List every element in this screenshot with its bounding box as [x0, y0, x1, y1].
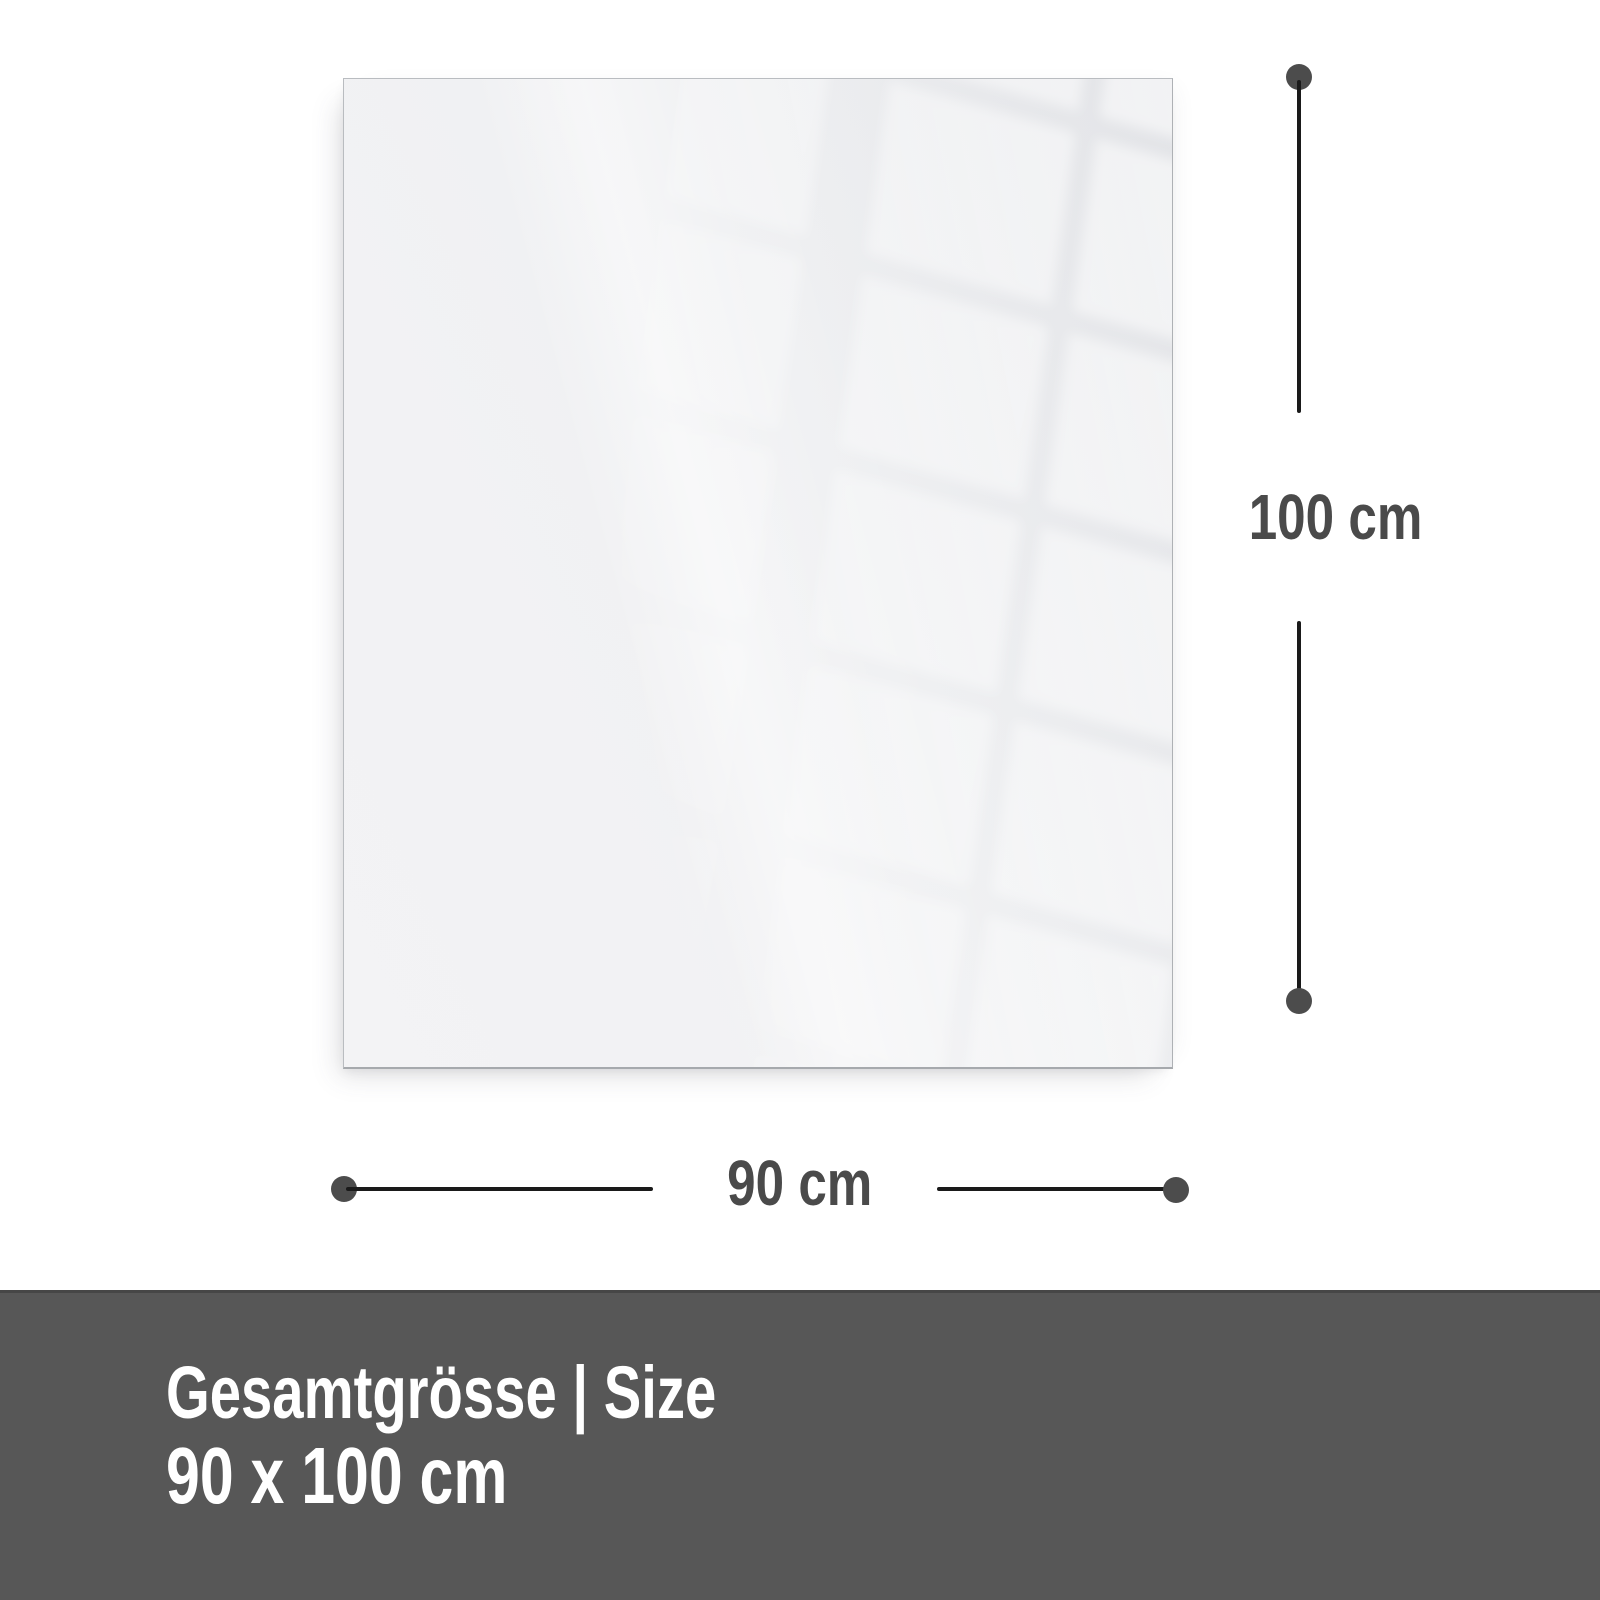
reflection-pane [609, 413, 776, 625]
dimension-line-segment [346, 1187, 653, 1191]
reflection-pane [811, 469, 1021, 693]
dimension-line-segment [1297, 621, 1301, 990]
reflection-pane [838, 275, 1048, 499]
width-label-text: 90 cm [727, 1151, 872, 1215]
reflection-pane [1045, 333, 1173, 557]
reflection-pane [865, 81, 1075, 305]
size-footer: Gesamtgrösse | Size 90 x 100 cm [0, 1290, 1600, 1600]
reflection-pane [527, 995, 694, 1069]
reflection-pane [990, 721, 1173, 945]
dimension-endpoint-dot-right [1163, 1177, 1189, 1203]
dimension-line-segment [1297, 80, 1301, 413]
reflection-pane [1018, 527, 1173, 751]
reflection-pane [784, 663, 994, 887]
reflection-pane [663, 78, 830, 237]
dimension-endpoint-dot-bottom [1286, 988, 1312, 1014]
reflection-pane [1072, 139, 1173, 363]
width-dimension-label: 90 cm [650, 1151, 950, 1215]
reflection-pane [582, 607, 749, 819]
product-size-diagram: 100 cm 90 cm Gesamtgrösse | Size 90 x 10… [0, 0, 1600, 1600]
reflection-pane [963, 915, 1173, 1069]
dimension-line-segment [937, 1187, 1168, 1191]
reflection-pane [554, 801, 721, 1013]
window-reflection [496, 78, 1173, 1069]
product-panel [343, 78, 1173, 1069]
reflection-pane [636, 219, 803, 431]
reflection-pane [756, 857, 966, 1069]
height-dimension-label: 100 cm [1186, 485, 1486, 549]
footer-size-value: 90 x 100 cm [166, 1436, 507, 1516]
footer-title: Gesamtgrösse | Size [166, 1356, 716, 1430]
height-label-text: 100 cm [1249, 485, 1423, 549]
